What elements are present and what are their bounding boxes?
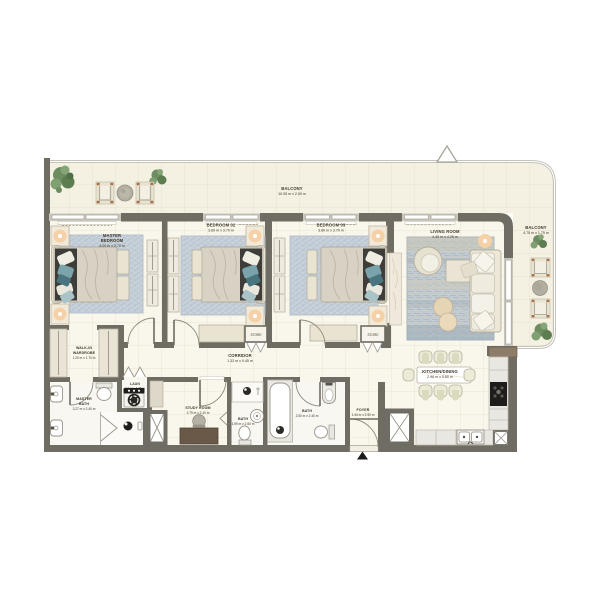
svg-text:2.50 m x 2.40 m: 2.50 m x 2.40 m [296,414,319,418]
svg-text:BEDROOM 02: BEDROOM 02 [207,223,236,228]
svg-text:LIVING ROOM: LIVING ROOM [430,229,460,234]
svg-text:2.98 m x 5.60 m: 2.98 m x 5.60 m [427,375,453,379]
svg-text:STUDY ROOM: STUDY ROOM [185,406,210,410]
svg-text:BATH: BATH [302,409,312,413]
svg-text:KITCHEN/DINING: KITCHEN/DINING [422,369,458,374]
svg-text:4.00 m x 3.70 m: 4.00 m x 3.70 m [99,244,125,248]
svg-text:BATH: BATH [79,402,89,406]
svg-text:WARDROBE: WARDROBE [73,351,96,355]
svg-text:BALCONY: BALCONY [525,225,547,230]
svg-text:4.75 m x 1.75 m: 4.75 m x 1.75 m [523,231,549,235]
svg-text:2.79 m x 2.40 m: 2.79 m x 2.40 m [187,411,210,415]
svg-text:1.33 m x 9.45 m: 1.33 m x 9.45 m [227,359,253,363]
svg-text:CORRIDOR: CORRIDOR [228,353,252,358]
svg-text:STORE: STORE [251,333,262,337]
svg-text:BALCONY: BALCONY [281,186,303,191]
svg-text:BATH: BATH [238,417,248,421]
svg-text:10.05 m x 2.00 m: 10.05 m x 2.00 m [278,192,306,196]
svg-text:WALK-IN: WALK-IN [76,346,92,350]
svg-text:1.40 m x 2.90 m: 1.40 m x 2.90 m [352,413,375,417]
svg-text:3.60 m x 3.70 m: 3.60 m x 3.70 m [208,229,234,233]
svg-text:FOYER: FOYER [357,408,370,412]
svg-text:1.20 m x 1.70 m: 1.20 m x 1.70 m [73,356,96,360]
svg-text:1.59 m x 2.60 m: 1.59 m x 2.60 m [232,422,255,426]
svg-text:3.27 m x 2.40 m: 3.27 m x 2.40 m [73,407,96,411]
svg-text:MASTER: MASTER [76,397,92,401]
svg-text:BEDROOM: BEDROOM [101,238,124,243]
svg-text:3.60 m x 3.70 m: 3.60 m x 3.70 m [318,229,344,233]
svg-text:STORE: STORE [368,333,379,337]
svg-text:BEDROOM 03: BEDROOM 03 [317,223,346,228]
svg-text:4.40 m x 4.25 m: 4.40 m x 4.25 m [432,235,458,239]
